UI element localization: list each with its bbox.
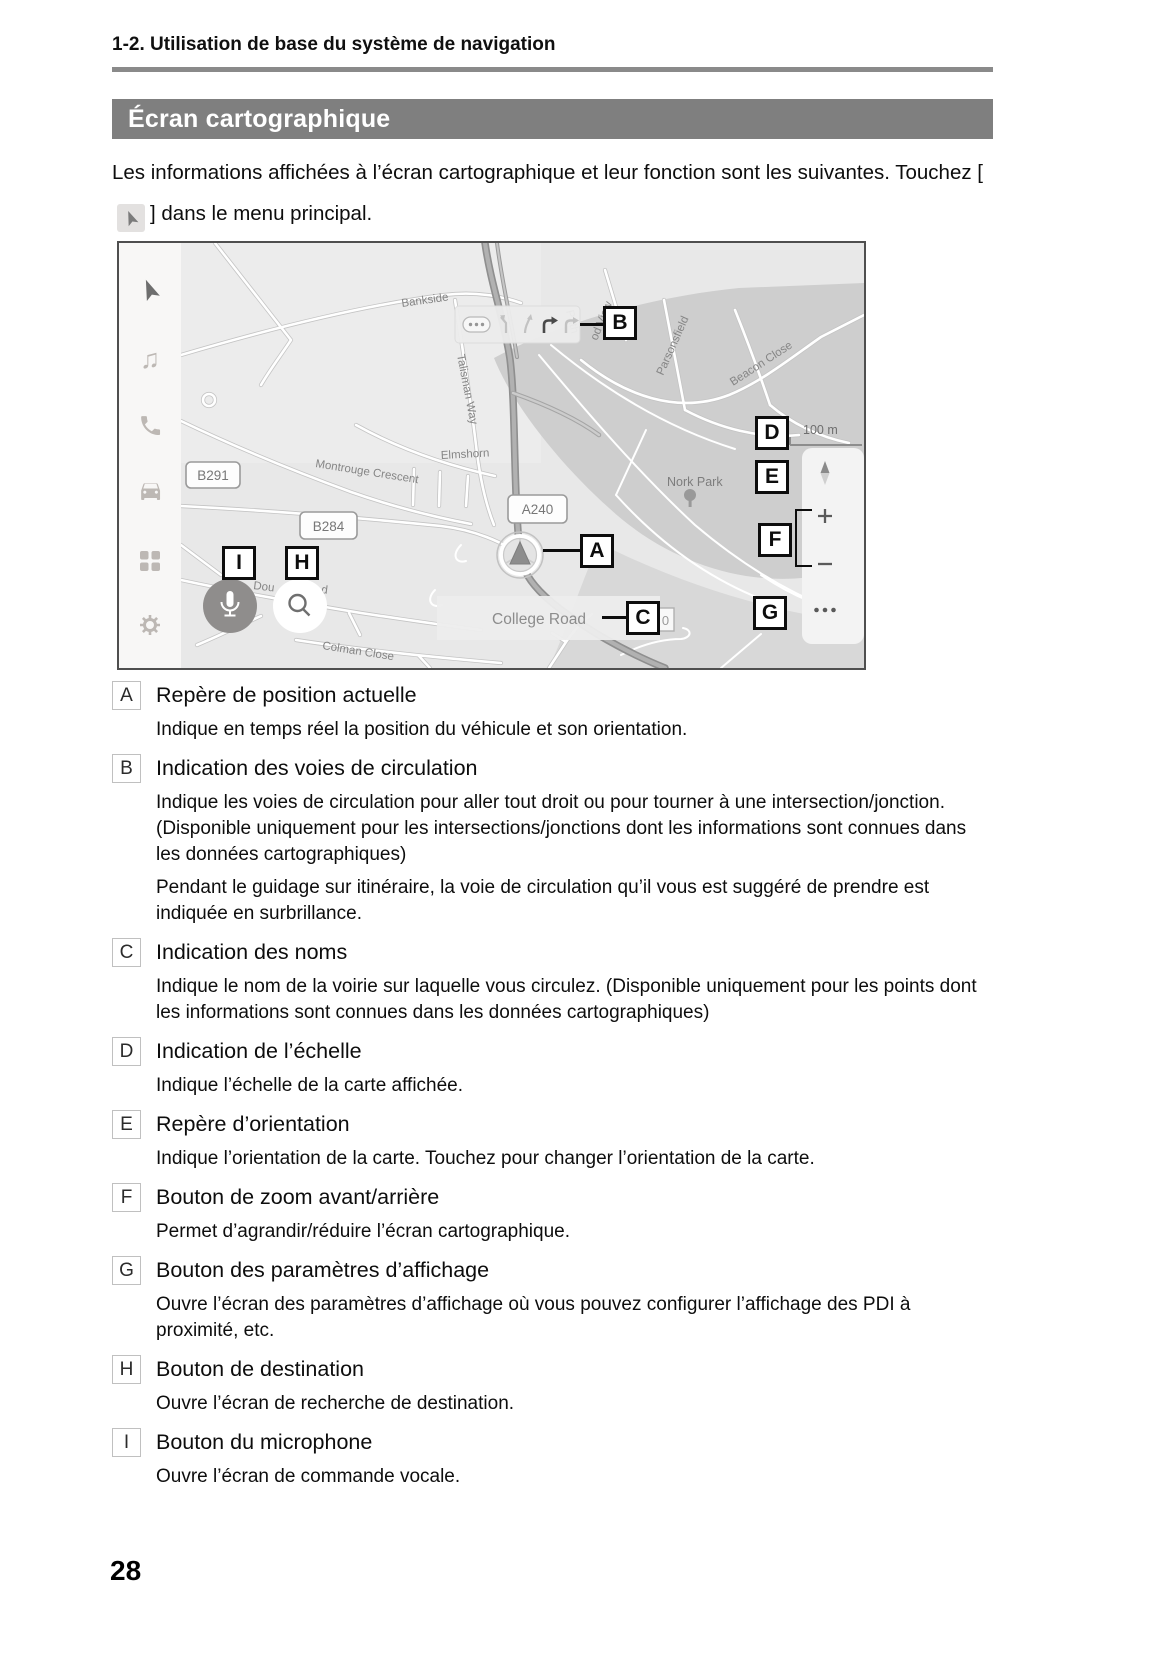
legend-title: Repère de position actuelle [156,683,417,708]
svg-text:A240: A240 [522,502,554,517]
legend-description: Pendant le guidage sur itinéraire, la vo… [156,875,993,927]
intro-text: Les informations affichées à l’écran car… [112,152,993,234]
legend-item-g: GBouton des paramètres d’affichage Ouvre… [112,1256,993,1344]
callout-c: C [626,601,660,635]
nav-sidebar: ♫ [119,243,181,668]
sidebar-music-button[interactable]: ♫ [140,344,160,374]
legend-description: Ouvre l’écran de recherche de destinatio… [156,1391,993,1417]
legend-title: Indication des voies de circulation [156,756,478,781]
road-label-elmshorn: Elmshorn [441,447,490,462]
road-label-down-frag1: Dou [253,580,275,594]
section-title: Écran cartographique [112,105,390,134]
header-rule [112,67,993,72]
legend-description: Indique le nom de la voirie sur laquelle… [156,974,993,1026]
legend-description: Indique l’échelle de la carte affichée. [156,1073,993,1099]
legend-key-box: H [112,1355,141,1384]
legend-title: Indication des noms [156,940,347,965]
callout-d: D [755,416,789,450]
legend-key-box: I [112,1428,141,1457]
legend-key-box: G [112,1256,141,1285]
scale-label: 100 m [803,423,838,437]
legend-key-box: A [112,681,141,710]
poi-label-nork-park: Nork Park [667,475,723,489]
svg-text:B291: B291 [197,468,229,483]
destination-search-button[interactable] [273,579,327,633]
legend-item-d: DIndication de l’échelle Indique l’échel… [112,1037,993,1099]
legend-description: Permet d’agrandir/réduire l’écran cartog… [156,1219,993,1245]
svg-text:B284: B284 [313,519,345,534]
callout-bracket-f [795,509,812,567]
callout-line-a [543,549,581,552]
current-position-marker [497,532,543,578]
legend-description: Indique en temps réel la position du véh… [156,717,993,743]
legend-description: Ouvre l’écran des paramètres d’affichage… [156,1292,993,1344]
callout-e: E [755,460,789,494]
legend-title: Indication de l’échelle [156,1039,362,1064]
legend-title: Bouton de zoom avant/arrière [156,1185,439,1210]
navigation-arrow-icon [117,204,145,232]
legend-description: Indique les voies de circulation pour al… [156,790,993,868]
legend-key-box: D [112,1037,141,1066]
legend-item-b: BIndication des voies de circulation Ind… [112,754,993,927]
legend-item-f: FBouton de zoom avant/arrière Permet d’a… [112,1183,993,1245]
legend-title: Bouton des paramètres d’affichage [156,1258,489,1283]
section-title-bar: Écran cartographique [112,99,993,139]
callout-line-c [602,616,626,619]
legend-item-c: CIndication des noms Indique le nom de l… [112,938,993,1026]
legend-key-box: F [112,1183,141,1212]
legend-key-box: E [112,1110,141,1139]
legend-item-a: ARepère de position actuelle Indique en … [112,681,993,743]
svg-text:♫: ♫ [140,344,160,374]
callout-g: G [753,596,787,630]
legend-description: Indique l’orientation de la carte. Touch… [156,1146,993,1172]
legend-item-e: ERepère d’orientation Indique l’orientat… [112,1110,993,1172]
callout-f: F [758,523,792,557]
display-settings-button[interactable] [814,608,836,613]
badge-b284: B284 [300,512,357,539]
lane-indication-bar [455,306,580,343]
callout-a: A [580,534,614,568]
badge-a240: A240 [508,495,567,523]
legend-list: ARepère de position actuelle Indique en … [112,681,993,1490]
legend-item-h: HBouton de destination Ouvre l’écran de … [112,1355,993,1417]
legend-key-box: C [112,938,141,967]
page-number: 28 [110,1555,141,1587]
current-street-label: College Road [492,611,586,628]
callout-b: B [603,306,637,340]
callout-line-b [580,323,604,326]
svg-text:0: 0 [662,613,669,628]
legend-key-box: B [112,754,141,783]
map-screenshot: Bankside Talisman Way Montrouge Crescent… [117,241,866,670]
manual-page: 1-2. Utilisation de base du système de n… [0,0,1165,1653]
legend-description: Ouvre l’écran de commande vocale. [156,1464,993,1490]
legend-title: Repère d’orientation [156,1112,350,1137]
legend-title: Bouton du microphone [156,1430,372,1455]
legend-title: Bouton de destination [156,1357,364,1382]
callout-h: H [285,546,319,580]
lane-more-pill [463,317,490,332]
badge-b291: B291 [186,462,240,488]
microphone-button[interactable] [203,579,257,633]
breadcrumb: 1-2. Utilisation de base du système de n… [112,0,993,56]
legend-item-i: IBouton du microphone Ouvre l’écran de c… [112,1428,993,1490]
callout-i: I [222,546,256,580]
